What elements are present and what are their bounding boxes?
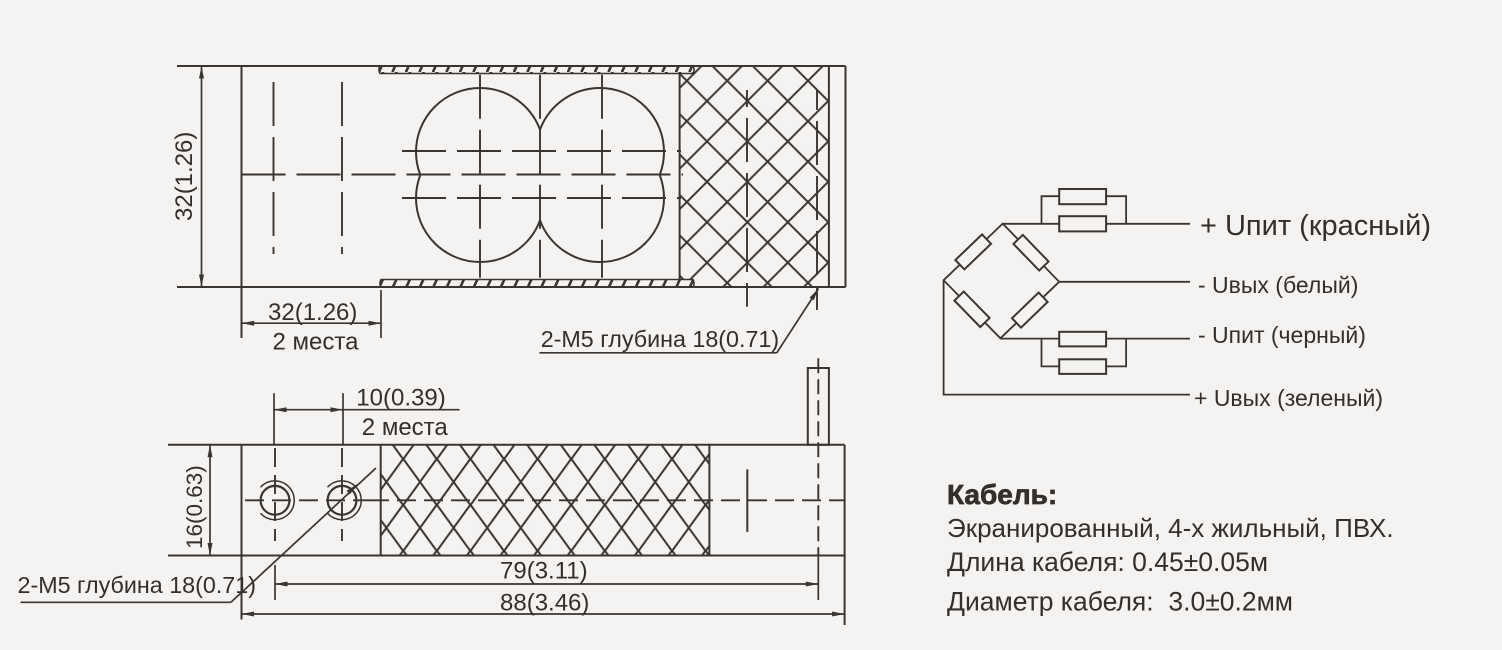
svg-text:2-М5 глубина 18(0.71): 2-М5 глубина 18(0.71) [18,572,256,598]
svg-text:2 места: 2 места [362,414,449,441]
svg-text:32(1.26): 32(1.26) [268,299,357,326]
svg-text:+ Uпит (красный): + Uпит (красный) [1200,210,1431,242]
svg-text:- Uвых (белый): - Uвых (белый) [1198,272,1358,298]
svg-text:- Uпит (черный): - Uпит (черный) [1198,322,1366,348]
svg-text:+ Uвых (зеленый): + Uвых (зеленый) [1194,385,1383,411]
svg-text:79(3.11): 79(3.11) [500,558,588,585]
svg-text:16(0.63): 16(0.63) [182,465,207,549]
svg-text:32(1.26): 32(1.26) [171,132,198,221]
svg-text:2 места: 2 места [273,329,360,356]
svg-text:Длина кабеля: 0.45±0.05м: Длина кабеля: 0.45±0.05м [947,547,1268,577]
svg-text:Диаметр кабеля: 3.0±0.2мм: Диаметр кабеля: 3.0±0.2мм [947,587,1293,617]
svg-text:Экранированный, 4-х жильный, П: Экранированный, 4-х жильный, ПВХ. [947,513,1394,543]
svg-text:88(3.46): 88(3.46) [500,589,589,616]
svg-text:Кабель:: Кабель: [947,479,1057,510]
svg-text:10(0.39): 10(0.39) [356,384,445,411]
svg-text:2-М5 глубина 18(0.71): 2-М5 глубина 18(0.71) [541,326,779,352]
